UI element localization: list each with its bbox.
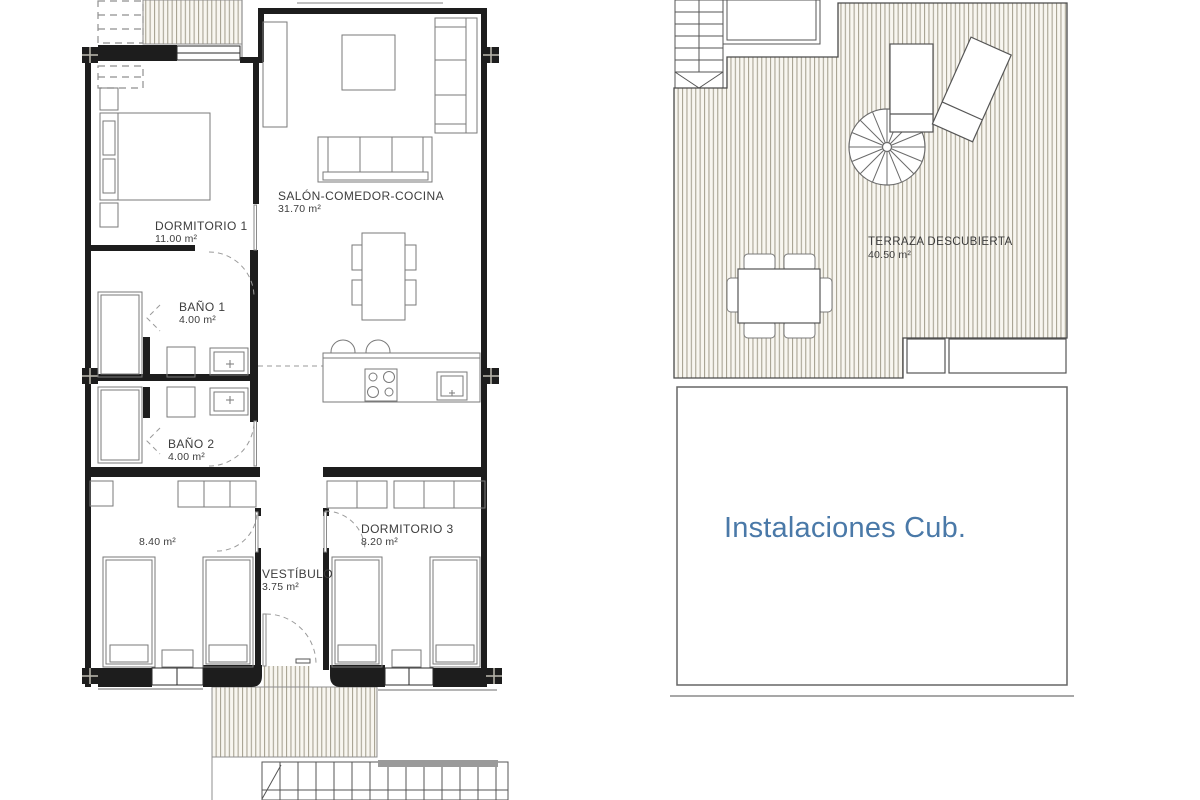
floorplan-canvas: SALÓN-COMEDOR-COCINA 31.70 m² DORMITORIO…	[0, 0, 1200, 800]
plan-drawing	[0, 0, 1200, 800]
room-label-bano2: BAÑO 2 4.00 m²	[168, 438, 214, 463]
room-name: BAÑO 1	[179, 301, 225, 314]
single-beds-dorm2	[103, 557, 253, 667]
room-area: 3.75 m²	[262, 581, 333, 593]
room-label-bano1: BAÑO 1 4.00 m²	[179, 301, 225, 326]
sofa-bottom	[318, 137, 432, 182]
room-label-dormitorio3: DORMITORIO 3 8.20 m²	[361, 523, 454, 548]
room-name: VESTÍBULO	[262, 568, 333, 581]
kitchen	[258, 340, 480, 402]
room-label-salon: SALÓN-COMEDOR-COCINA 31.70 m²	[278, 190, 444, 215]
single-beds-dorm3	[332, 557, 480, 667]
room-area: 4.00 m²	[168, 451, 214, 463]
room-label-vestibulo: VESTÍBULO 3.75 m²	[262, 568, 333, 593]
bathroom1-fixtures	[98, 292, 248, 377]
room-label-terraza: TERRAZA DESCUBIERTA 40.50 m²	[868, 236, 1013, 261]
room-name: DORMITORIO 1	[155, 220, 248, 233]
room-name: DORMITORIO 3	[361, 523, 454, 536]
wardrobes	[90, 481, 485, 508]
room-name: SALÓN-COMEDOR-COCINA	[278, 190, 444, 203]
room-name: TERRAZA DESCUBIERTA	[868, 236, 1013, 249]
dashed-overhang	[98, 1, 143, 88]
roof-plan	[670, 0, 1074, 696]
room-label-dormitorio1: DORMITORIO 1 11.00 m²	[155, 220, 248, 245]
exterior-stairs	[262, 760, 508, 800]
side-table	[342, 35, 395, 90]
room-area: 11.00 m²	[155, 233, 248, 245]
sun-lounger-straight	[890, 44, 933, 132]
room-area: 8.40 m²	[139, 536, 176, 548]
tv-cabinet	[263, 22, 287, 127]
room-area: 31.70 m²	[278, 203, 444, 215]
doors	[209, 205, 365, 666]
room-label-dormitorio2: 8.40 m²	[139, 536, 176, 548]
room-area: 40.50 m²	[868, 249, 1013, 261]
room-name: BAÑO 2	[168, 438, 214, 451]
double-bed-dorm1	[100, 88, 210, 227]
room-area: 8.20 m²	[361, 536, 454, 548]
sofa-right	[435, 18, 477, 133]
instalaciones-label: Instalaciones Cub.	[724, 512, 966, 545]
room-area: 4.00 m²	[179, 314, 225, 326]
left-floor-plan	[82, 0, 508, 800]
dining-set	[352, 233, 416, 320]
